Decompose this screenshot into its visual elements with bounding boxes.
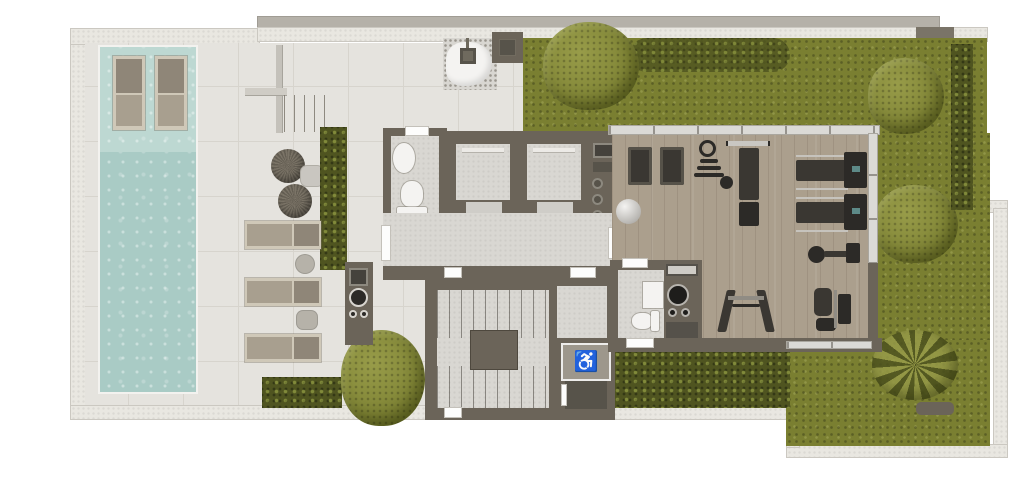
elevator-2-door bbox=[537, 202, 573, 213]
exercise-ball bbox=[616, 199, 641, 224]
gym-counter-burner-2 bbox=[681, 308, 690, 317]
weight-rack-bar-1 bbox=[700, 159, 718, 163]
deck-lounger-2 bbox=[245, 278, 321, 306]
door-gym-bathroom-north bbox=[622, 258, 648, 268]
bench-press-seat bbox=[739, 202, 759, 226]
floor-plan: ♿ bbox=[0, 0, 1024, 478]
elevator-1-door-rail bbox=[462, 148, 504, 152]
treadmill-screen bbox=[852, 166, 860, 172]
treadmill-2 bbox=[796, 197, 848, 232]
lounger-backrest bbox=[294, 337, 319, 359]
side-table-round bbox=[296, 255, 314, 273]
grill-burner-small-1 bbox=[349, 310, 357, 318]
machine-row bbox=[808, 243, 860, 267]
weight-rack-bar-2 bbox=[697, 166, 721, 170]
kettlebell bbox=[720, 176, 733, 189]
boundary-wall-bottom-right bbox=[786, 444, 1008, 458]
garden-bench bbox=[916, 402, 954, 415]
lounger-backrest bbox=[294, 281, 319, 303]
gym-glass-wall-south bbox=[786, 341, 872, 349]
bar-stool-1 bbox=[592, 178, 603, 189]
machine-seat bbox=[808, 246, 825, 263]
lounger-seat bbox=[116, 95, 142, 126]
treadmill-screen bbox=[852, 208, 860, 214]
machine-weight-stack bbox=[846, 243, 860, 263]
grill-sink bbox=[349, 268, 368, 286]
elevator-shaft-1 bbox=[456, 144, 510, 200]
door-accessible-lobby bbox=[570, 267, 596, 278]
bar-stool-2 bbox=[592, 194, 603, 205]
stair-landing bbox=[471, 331, 517, 369]
lounger-seat bbox=[247, 281, 292, 303]
deck-lounger-3 bbox=[245, 334, 321, 362]
gym-counter-burner-large bbox=[667, 284, 689, 306]
gym-glass-wall-north bbox=[608, 125, 880, 135]
stair-flight-lower bbox=[437, 366, 549, 408]
boundary-wall-left bbox=[70, 28, 86, 420]
gym-counter-burner-1 bbox=[668, 308, 677, 317]
pouf-1 bbox=[271, 149, 305, 183]
door-stair-south bbox=[444, 407, 462, 418]
door-gym-bathroom-south bbox=[626, 338, 654, 348]
squat-rack-bar bbox=[728, 296, 764, 300]
wheelchair-icon: ♿ bbox=[574, 352, 599, 372]
elevator-shaft-2 bbox=[527, 144, 581, 200]
treadmill-1-console bbox=[844, 152, 867, 188]
tree-right-2 bbox=[874, 185, 958, 263]
lounger-backrest bbox=[294, 224, 319, 246]
bush-spiral bbox=[872, 330, 958, 400]
shaft-door bbox=[561, 384, 567, 406]
barbell-bar bbox=[728, 141, 768, 146]
door-stair bbox=[444, 267, 462, 278]
elevator-2-door-rail bbox=[533, 148, 575, 152]
in-pool-lounger-1 bbox=[113, 56, 145, 130]
gym-glass-wall-east bbox=[868, 133, 878, 265]
gym-vanity bbox=[643, 282, 663, 308]
side-table-square-2 bbox=[297, 311, 317, 329]
hedge-right-strip bbox=[951, 44, 973, 210]
treadmill-1 bbox=[796, 155, 848, 190]
tree-right-1 bbox=[868, 58, 944, 134]
gym-toilet-tank bbox=[651, 311, 659, 331]
machine-2-stack bbox=[838, 294, 851, 324]
lounger-seat bbox=[247, 337, 292, 359]
skylight-inner bbox=[500, 40, 515, 55]
treadmill-2-console bbox=[844, 194, 867, 230]
deck-low-wall bbox=[245, 88, 287, 95]
sculpture-base bbox=[460, 48, 476, 64]
corridor bbox=[383, 213, 620, 268]
gym-counter-shelf bbox=[666, 264, 698, 276]
door-bathroom-1 bbox=[405, 126, 429, 136]
boundary-wall-bottom-mid bbox=[612, 406, 800, 420]
tree-top bbox=[543, 22, 639, 110]
service-shaft bbox=[565, 381, 607, 409]
pool bbox=[98, 45, 198, 394]
squat-rack-brace bbox=[732, 304, 760, 307]
machine-2-rail bbox=[834, 290, 837, 328]
elevator-1-door bbox=[466, 202, 502, 213]
hedge-planter-bottom bbox=[262, 377, 342, 408]
grill-burner-large bbox=[349, 288, 368, 307]
sink-basin bbox=[393, 143, 415, 173]
boundary-wall-right-lower bbox=[993, 208, 1008, 448]
door-corridor-west bbox=[381, 225, 391, 261]
pouf-2 bbox=[278, 184, 312, 218]
lounger-backrest bbox=[116, 59, 142, 93]
shrub-band-top bbox=[630, 38, 790, 72]
lounger-seat bbox=[247, 224, 292, 246]
lounger-seat bbox=[158, 95, 184, 126]
accessible-lobby-floor bbox=[557, 286, 607, 338]
machine-arm bbox=[824, 251, 848, 257]
treadmill-belt bbox=[796, 160, 846, 181]
accessible-platform: ♿ bbox=[561, 343, 611, 381]
exercise-mat-2 bbox=[660, 147, 684, 185]
weight-rack-bar-3 bbox=[694, 173, 724, 177]
machine-2-seat bbox=[814, 288, 832, 316]
toilet-bowl bbox=[401, 181, 423, 207]
machine-2-pad bbox=[816, 318, 836, 331]
skylight-box bbox=[492, 32, 523, 63]
treadmill-belt bbox=[796, 202, 846, 223]
hedge-planter-vertical bbox=[320, 127, 347, 270]
in-pool-lounger-2 bbox=[155, 56, 187, 130]
machine-2 bbox=[812, 286, 854, 334]
bench-press-pad bbox=[739, 148, 759, 200]
exercise-mat-1 bbox=[628, 147, 652, 185]
lounger-backrest bbox=[158, 59, 184, 93]
gym-toilet-bowl bbox=[632, 313, 652, 329]
gym-counter-cabinet bbox=[666, 322, 698, 338]
squat-rack bbox=[720, 288, 772, 334]
gym-wall-east-lower bbox=[868, 263, 878, 343]
pool-main-basin bbox=[100, 152, 196, 392]
deck-lounger-1 bbox=[245, 221, 321, 249]
weight-plate-rack-top bbox=[699, 140, 716, 157]
grill-burner-small-2 bbox=[360, 310, 368, 318]
